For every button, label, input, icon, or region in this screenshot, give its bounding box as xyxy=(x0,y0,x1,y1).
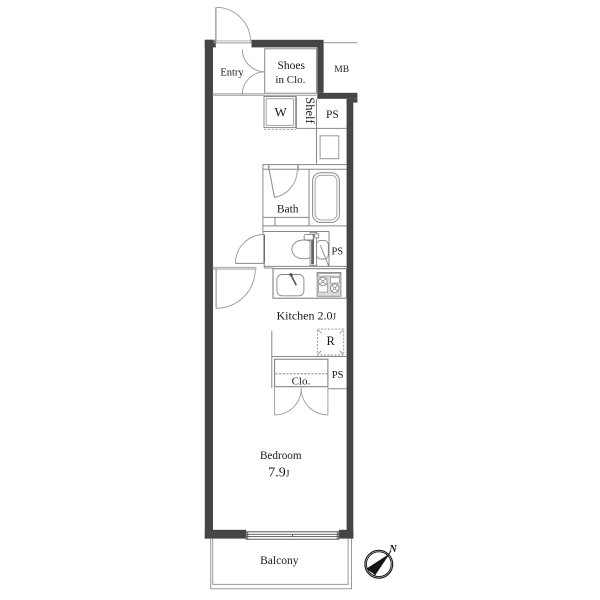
svg-text:Shelf: Shelf xyxy=(303,97,317,124)
svg-text:Balcony: Balcony xyxy=(260,555,299,567)
svg-text:Kitchen 2.0J: Kitchen 2.0J xyxy=(277,308,337,322)
svg-text:W: W xyxy=(274,105,287,120)
svg-text:N: N xyxy=(388,544,397,555)
svg-text:in Clo.: in Clo. xyxy=(275,74,305,86)
svg-text:Bath: Bath xyxy=(277,204,299,216)
svg-text:PS: PS xyxy=(331,246,343,257)
svg-text:PS: PS xyxy=(326,109,339,121)
svg-text:Clo.: Clo. xyxy=(292,375,311,387)
svg-text:R: R xyxy=(327,334,336,348)
svg-text:Bedroom: Bedroom xyxy=(260,450,302,462)
svg-text:Entry: Entry xyxy=(220,68,244,79)
svg-text:Shoes: Shoes xyxy=(277,60,305,72)
svg-text:PS: PS xyxy=(332,370,344,381)
svg-text:7.9J: 7.9J xyxy=(268,466,290,481)
svg-text:MB: MB xyxy=(334,65,349,75)
